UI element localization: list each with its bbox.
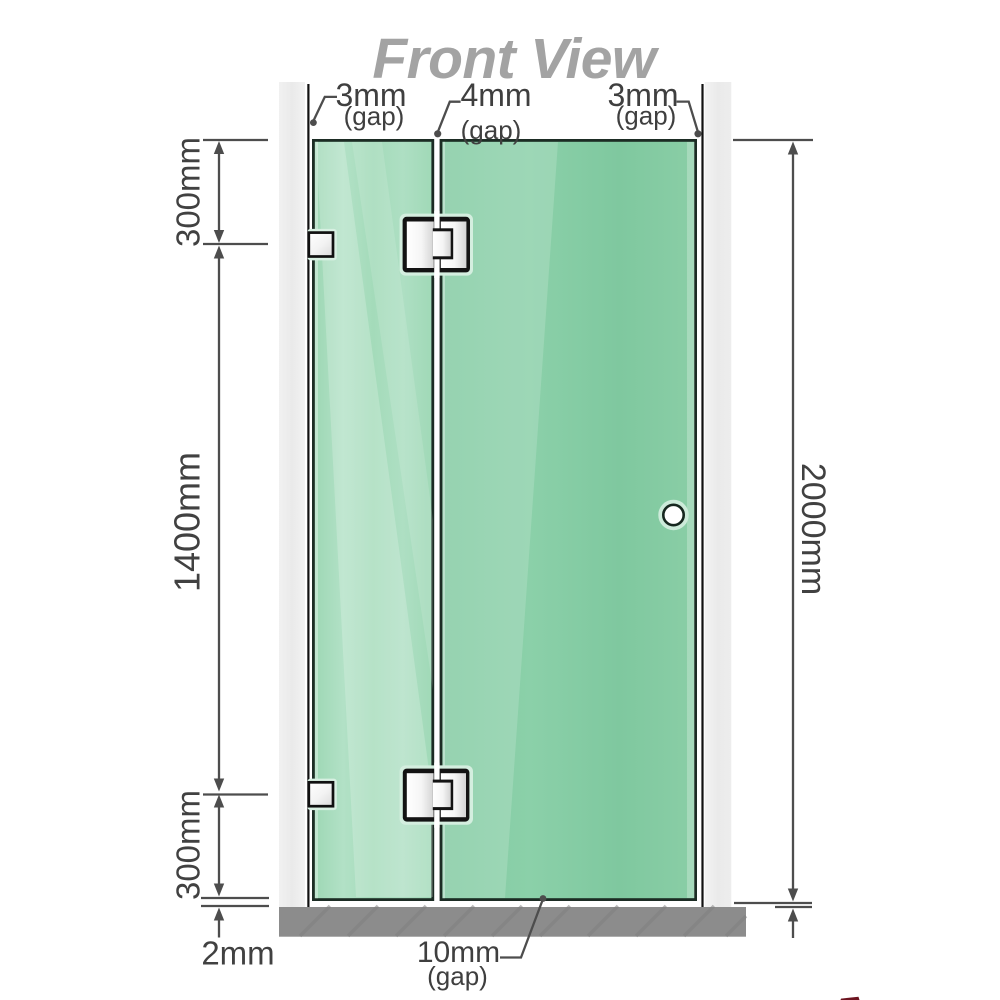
svg-text:300mm: 300mm [170,790,207,900]
svg-text:300mm: 300mm [170,137,207,247]
svg-text:2000mm: 2000mm [794,463,832,595]
svg-text:1400mm: 1400mm [167,452,208,592]
svg-text:(gap): (gap) [427,961,488,991]
svg-text:(gap): (gap) [616,101,677,131]
svg-text:2mm: 2mm [201,935,274,972]
svg-text:4mm: 4mm [460,77,531,113]
svg-text:(gap): (gap) [344,101,405,131]
svg-text:(gap): (gap) [461,115,522,145]
